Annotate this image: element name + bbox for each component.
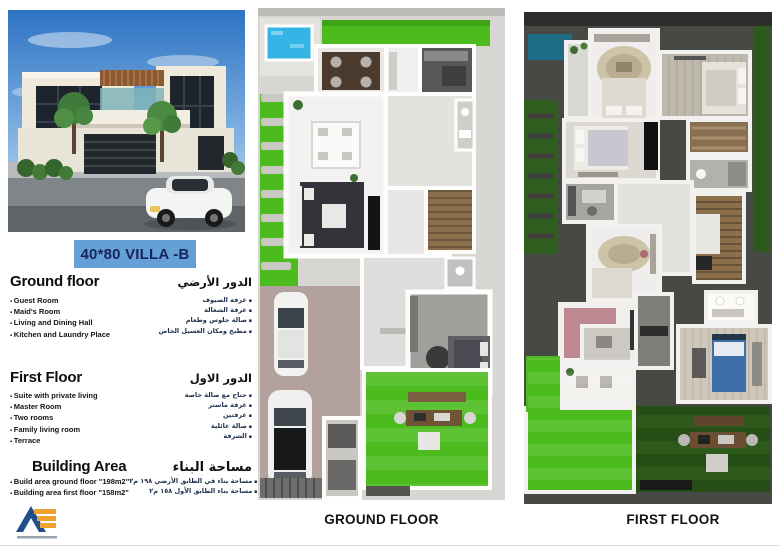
list-item: Maid's Room [10,307,110,318]
ground-floor-heading-ar: الدور الأرضي [177,275,252,289]
villa-exterior-photo [8,10,245,232]
logo-bar [34,509,56,514]
kitchen-island [442,66,466,86]
bathroom-lit [706,292,756,322]
counter [389,52,397,90]
dining-table-dark [322,52,380,90]
shelf-unit [328,460,356,490]
flowers [640,250,648,258]
terrace [526,356,634,492]
logo-bar [37,516,56,521]
rear-gate [640,480,692,490]
logo-mark [14,500,62,544]
first-floor-heading-ar: الدور الاول [190,371,252,385]
kitchen-counter [424,51,468,61]
list-item: Two rooms [10,413,98,424]
chair [331,57,342,68]
logo-bar [40,523,56,528]
sink [459,130,471,138]
coffee-table [596,336,612,348]
vanity [712,309,744,317]
villa-title: 40*80 VILLA -B [74,240,196,268]
list-item: مطبخ ومكان الغسيل الخاص [159,327,252,337]
master-bedroom [590,30,658,118]
staircase [426,188,474,252]
list-item: غرفة الضيوف [159,296,252,306]
armchair [304,234,314,246]
ground-floor-plan-illustration [258,8,505,500]
family-living-room [560,304,636,364]
ground-floor-heading-en: Ground floor [10,273,99,290]
office-room [564,182,616,222]
dresser [594,34,650,42]
first-floor-heading-row: First Floor الدور الاول [10,369,252,386]
list-item: Build area ground floor "198m2" [10,477,129,488]
first-floor-list-en: Suite with private living Master Room Tw… [10,391,98,447]
place-setting [318,128,328,136]
chair [746,434,758,446]
list-item: Living and Dining Hall [10,318,110,329]
corridor [386,188,426,256]
pink-sofa [564,308,616,324]
place-setting [342,128,352,136]
bench [694,416,744,426]
plant [570,46,578,54]
side-door [198,136,224,170]
wardrobe [410,296,418,352]
chair [361,77,372,88]
chair [678,434,690,446]
shelf-unit [328,424,356,448]
list-item: غرفة ماستر [185,401,252,411]
chair [361,57,372,68]
list-item: مساحة بناء الطابق الأول ١٥٨ م٢ [129,487,257,497]
chair [331,77,342,88]
building-area-heading-ar: مساحة البناء [173,460,252,475]
list-item: Suite with private living [10,391,98,402]
list-item: Terrace [10,436,98,447]
list-item: جناح مع صالة خاصة [185,391,252,401]
office-chair [587,206,597,216]
first-floor-heading-en: First Floor [10,369,82,386]
round-rug [426,346,450,370]
bed [592,268,632,298]
brochure-page: 40*80 VILLA -B Ground floor الدور الأرضي… [0,0,780,551]
coffee-table [322,204,346,228]
pink-sofa [564,324,580,358]
rear-lawn-below [636,406,770,492]
building-area-heading-row: Building Area مساحة البناء [10,458,252,475]
car-top-view [274,292,308,376]
right-garden-below [754,26,770,252]
list-item: Guest Room [10,296,110,307]
building-area-list-ar: مساحة بناء في الطابق الأرضي ١٩٨ م٢ مساحة… [129,477,257,499]
ground-floor-label: GROUND FLOOR [258,512,505,527]
top-wall [258,8,505,16]
footer-divider [0,545,780,546]
stair-landing [696,214,720,254]
sofa [290,186,302,246]
logo-caption-line [17,536,57,539]
toilet [696,169,706,179]
list-item: الشرفة [185,432,252,442]
list-item: Family living room [10,425,98,436]
first-floor-lists: Suite with private living Master Room Tw… [10,391,252,447]
tv-unit [368,196,380,250]
list-item: صالة عائلية [185,422,252,432]
pool-ripple [271,31,283,35]
bathroom [688,158,750,190]
bathroom [456,100,474,150]
bookshelf [568,186,576,216]
back-lawn [364,370,490,488]
bedroom-bottom-center [588,226,660,300]
plant [293,100,303,110]
console [640,326,668,336]
list-item: Master Room [10,402,98,413]
plant [581,43,588,50]
staircase [694,194,744,282]
main-gate [84,134,156,174]
ground-floor-list-ar: غرفة الضيوف غرفة الشغالة صالة جلوس وطعام… [159,296,252,341]
building-area-heading-en: Building Area [32,458,126,475]
building-area-lists: Build area ground floor "198m2" Building… [10,477,252,499]
list-item: Kitchen and Laundry Place [10,330,110,341]
tv-wall [630,310,634,350]
ground-floor-lists: Guest Room Maid's Room Living and Dining… [10,296,252,341]
upper-landing [636,294,672,368]
ground-floor-heading-row: Ground floor الدور الأرضي [10,273,252,290]
list-item: غرفة الشغالة [159,306,252,316]
entry-gate [260,478,322,498]
list-item: Building area first floor "158m2" [10,488,129,499]
ground-floor-list-en: Guest Room Maid's Room Living and Dining… [10,296,110,341]
toilet [461,108,469,116]
walk-in-closet [688,120,750,154]
wardrobe [752,342,762,386]
front-balcony [566,42,590,118]
villa-exterior-illustration [8,10,245,232]
place-setting [318,152,328,160]
car-top-view [268,390,312,486]
list-item: مساحة بناء في الطابق الأرضي ١٩٨ م٢ [129,477,257,487]
bedroom-bottom-right [678,326,770,402]
lawn-shade [322,20,490,26]
rear-gate [366,486,410,496]
cloud [28,32,112,48]
walkway-stones-below [528,116,554,236]
desk [582,190,606,203]
company-logo [14,500,62,544]
dresser [650,234,656,274]
headboard [712,334,746,340]
armchair [304,188,314,200]
top-band [524,12,772,26]
building-area-list-en: Build area ground floor "198m2" Building… [10,477,129,499]
plant [350,174,358,182]
pool-ripple [290,44,304,48]
bedroom-top-right [660,52,750,118]
bench [578,172,618,177]
place-setting [342,152,352,160]
bedroom-mid-left [564,120,658,180]
first-floor-plan [524,12,772,504]
toilet [456,267,465,276]
list-item: صالة جلوس وطعام [159,316,252,326]
tv [674,56,706,60]
shower [728,162,746,186]
first-floor-list-ar: جناح مع صالة خاصة غرفة ماستر غرفتين صالة… [185,391,252,447]
chair [706,454,728,472]
first-floor-plan-illustration [524,12,772,504]
ground-floor-plan [258,8,505,500]
list-item: غرفتين [185,411,252,421]
rug [692,348,706,378]
wardrobe-dark [644,122,658,170]
first-floor-label: FIRST FLOOR [549,512,780,527]
